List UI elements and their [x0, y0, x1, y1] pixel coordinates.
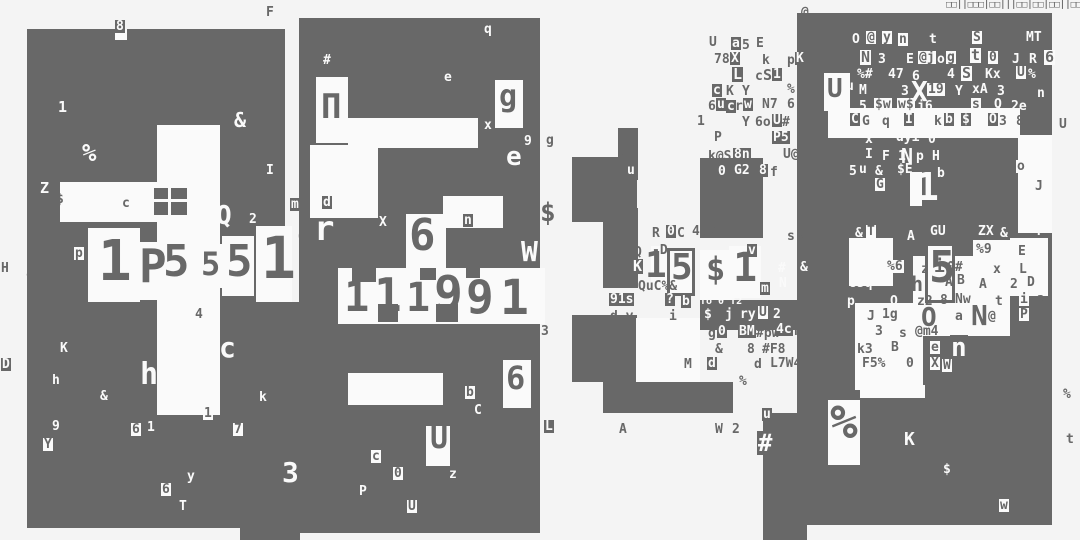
noise-glyph: 1: [733, 248, 757, 288]
noise-glyph: D: [1, 358, 11, 371]
noise-glyph: &: [715, 343, 723, 356]
noise-glyph: MT: [1026, 31, 1042, 44]
noise-glyph: A: [907, 230, 915, 243]
noise-glyph: N: [779, 277, 787, 290]
noise-glyph: u: [627, 164, 635, 177]
noise-glyph: 8n: [733, 148, 751, 161]
noise-glyph: W: [942, 359, 952, 372]
noise-glyph: 5: [798, 232, 806, 245]
noise-glyph: I: [904, 113, 914, 126]
noise-glyph: Q: [994, 98, 1002, 111]
noise-glyph: K: [726, 85, 734, 98]
noise-glyph: 19: [927, 83, 945, 96]
noise-glyph: a: [770, 520, 778, 533]
noise-glyph: o: [1016, 160, 1026, 173]
noise-glyph: O: [852, 33, 860, 46]
noise-glyph: #: [323, 54, 331, 67]
noise-glyph: 5: [163, 240, 190, 284]
noise-glyph: S: [763, 68, 772, 83]
noise-glyph: c: [122, 197, 130, 210]
noise-glyph: 1: [261, 229, 296, 287]
noise-glyph: g: [708, 327, 716, 340]
noise-glyph: #: [778, 262, 786, 275]
noise-glyph: 0: [905, 357, 915, 370]
noise-glyph: i: [1019, 293, 1029, 306]
noise-glyph: j6: [917, 100, 933, 113]
noise-glyph: 9: [466, 274, 494, 320]
noise-glyph: 8: [1016, 115, 1024, 128]
noise-glyph: Nw: [955, 293, 971, 306]
noise-glyph: j: [725, 308, 733, 321]
noise-glyph: 8: [115, 20, 125, 33]
noise-glyph: S: [961, 66, 972, 81]
noise-glyph: 1: [147, 421, 155, 434]
noise-glyph: U@: [783, 148, 799, 161]
noise-glyph: 3: [999, 115, 1007, 128]
noise-glyph: i: [859, 245, 867, 258]
noise-glyph: d: [754, 358, 762, 371]
noise-glyph: o: [937, 53, 945, 66]
noise-glyph: a: [955, 310, 963, 323]
noise-glyph: s: [899, 327, 907, 340]
noise-glyph: J: [1035, 180, 1043, 193]
noise-glyph: 6: [787, 98, 795, 111]
noise-glyph: T: [866, 225, 876, 238]
noise-glyph: Kx: [985, 68, 1001, 81]
noise-glyph: N: [971, 302, 988, 330]
noise-glyph: #: [782, 116, 790, 129]
noise-glyph: 3: [541, 325, 549, 338]
noise-glyph: M: [859, 84, 867, 97]
noise-glyph: 0: [988, 51, 998, 64]
noise-glyph: i: [1037, 310, 1045, 323]
noise-glyph: $E: [897, 163, 913, 176]
noise-glyph: 85q: [849, 277, 872, 290]
noise-glyph: 0: [298, 231, 306, 244]
noise-glyph: □□||□□□|□□|||□□|□□|□□||□□||□|||: [946, 1, 1080, 10]
noise-glyph: y: [187, 470, 195, 483]
gray-block: [285, 302, 300, 540]
noise-glyph: U: [827, 76, 843, 102]
noise-glyph: I: [266, 164, 274, 177]
noise-glyph: h: [911, 274, 923, 294]
noise-glyph: W: [521, 238, 538, 266]
noise-glyph: h: [140, 360, 158, 390]
noise-glyph: E: [1017, 245, 1027, 258]
window-grid-icon-pane: [171, 202, 187, 215]
noise-glyph: E: [756, 37, 764, 50]
noise-glyph: $: [706, 253, 725, 285]
noise-glyph: I: [864, 148, 874, 161]
noise-glyph: i: [934, 258, 945, 276]
noise-glyph: c: [371, 450, 381, 463]
noise-glyph: %: [739, 375, 747, 388]
noise-glyph: $: [56, 193, 64, 206]
noise-glyph: W: [715, 423, 723, 436]
noise-glyph: f: [770, 166, 778, 179]
gray-block: [603, 208, 638, 288]
noise-glyph: u: [846, 80, 854, 93]
noise-glyph: 5: [226, 240, 253, 284]
noise-glyph: t: [995, 295, 1003, 308]
noise-glyph: %6: [886, 260, 904, 273]
noise-glyph: z: [449, 468, 457, 481]
noise-glyph: 6: [131, 423, 141, 436]
noise-glyph: J: [867, 310, 875, 323]
noise-glyph: 6: [409, 214, 436, 258]
noise-glyph: e: [930, 341, 940, 354]
noise-glyph: X: [379, 216, 387, 229]
noise-glyph: 1: [697, 115, 705, 128]
noise-glyph: 1: [500, 274, 529, 322]
noise-glyph: p: [74, 247, 84, 260]
noise-glyph: a: [731, 37, 741, 50]
noise-glyph: C: [677, 227, 685, 240]
white-cutout: [860, 385, 925, 398]
noise-glyph: p: [787, 54, 795, 67]
noise-glyph: b: [944, 113, 954, 126]
noise-glyph: y: [882, 31, 892, 44]
noise-glyph: g: [546, 134, 554, 147]
noise-glyph: &: [800, 261, 808, 274]
noise-glyph: $: [540, 200, 556, 226]
noise-glyph: 78: [714, 53, 730, 66]
noise-glyph: N: [860, 50, 871, 65]
noise-glyph: P: [1019, 308, 1029, 321]
noise-glyph: 6o: [755, 116, 771, 129]
noise-glyph: e: [444, 71, 452, 84]
noise-glyph: B: [890, 341, 900, 354]
noise-glyph: 3: [878, 53, 886, 66]
gray-block: [572, 315, 637, 382]
noise-glyph: &: [234, 110, 246, 130]
noise-glyph: U: [772, 114, 782, 127]
noise-glyph: aH: [875, 245, 891, 258]
noise-glyph: %: [82, 141, 96, 165]
noise-glyph: K: [60, 342, 68, 355]
noise-glyph: H: [1, 262, 9, 275]
noise-glyph: L7W4: [770, 357, 801, 370]
noise-glyph: C: [850, 113, 860, 126]
noise-glyph: 5: [849, 165, 857, 178]
noise-glyph: i: [669, 310, 677, 323]
noise-glyph: t: [970, 48, 981, 63]
noise-glyph: G: [875, 178, 885, 191]
noise-glyph: H: [932, 150, 940, 163]
window-grid-icon-pane: [154, 202, 168, 215]
noise-glyph: k: [934, 115, 942, 128]
noise-glyph: M: [684, 358, 692, 371]
noise-glyph: 0: [928, 133, 936, 146]
noise-glyph: 6: [708, 100, 716, 113]
noise-glyph: 0: [666, 225, 676, 238]
window-grid-icon-pane: [171, 188, 187, 199]
noise-glyph: g: [499, 82, 517, 112]
noise-glyph: 0: [718, 165, 726, 178]
noise-glyph: s: [971, 98, 981, 111]
noise-glyph: F: [882, 150, 890, 163]
noise-glyph: 5: [859, 100, 867, 113]
noise-glyph: k: [259, 391, 267, 404]
noise-glyph: S: [972, 31, 982, 44]
noise-glyph: N7: [762, 98, 778, 111]
noise-glyph: ?: [665, 293, 675, 306]
noise-glyph: 1g: [882, 308, 898, 321]
noise-glyph: 1: [203, 407, 213, 420]
noise-glyph: c: [712, 84, 722, 97]
noise-glyph: 2: [1010, 278, 1018, 291]
noise-glyph: 5: [742, 39, 750, 52]
noise-glyph: &: [100, 390, 108, 403]
noise-glyph: &: [855, 227, 863, 240]
noise-glyph: 9: [524, 135, 532, 148]
noise-glyph: Z: [40, 181, 49, 196]
noise-glyph: 2: [1037, 295, 1045, 308]
noise-glyph: c: [219, 334, 236, 362]
noise-glyph: ry: [740, 308, 756, 321]
noise-glyph: R: [1029, 53, 1037, 66]
noise-glyph: n: [898, 33, 908, 46]
gray-block: [240, 528, 285, 540]
noise-glyph: %: [787, 83, 795, 96]
noise-glyph: 0: [393, 467, 403, 480]
noise-glyph: s: [787, 230, 795, 243]
noise-glyph: b: [465, 386, 475, 399]
noise-glyph: 2: [773, 308, 781, 321]
noise-glyph: p: [916, 150, 924, 163]
noise-glyph: r: [735, 100, 743, 113]
noise-glyph: h: [52, 374, 60, 387]
noise-glyph: 0: [717, 325, 727, 338]
noise-glyph: t: [1066, 433, 1074, 446]
white-cutout: [443, 196, 503, 228]
noise-glyph: K: [904, 431, 915, 449]
noise-glyph: 4uD: [692, 225, 715, 238]
noise-glyph: d y: [610, 310, 633, 323]
noise-glyph: 4: [195, 308, 203, 321]
noise-glyph: Π: [321, 90, 341, 124]
noise-glyph: ZX: [977, 225, 995, 238]
noise-glyph: U: [758, 306, 768, 319]
noise-glyph: Q: [216, 203, 232, 229]
noise-glyph: L: [732, 67, 743, 82]
noise-glyph: 2: [249, 213, 257, 226]
noise-glyph: 7: [233, 423, 243, 436]
noise-glyph: 7: [855, 260, 863, 273]
noise-glyph: u: [716, 98, 726, 111]
noise-glyph: @: [866, 31, 876, 44]
noise-glyph: 6: [506, 362, 525, 394]
noise-glyph: C: [474, 404, 482, 417]
noise-glyph: X: [730, 52, 740, 65]
noise-glyph: dyi: [896, 131, 919, 144]
gray-block: [603, 382, 733, 413]
noise-glyph: m: [760, 282, 770, 295]
noise-glyph: h: [790, 325, 798, 338]
noise-glyph: #: [757, 431, 773, 455]
white-cutout: [348, 118, 478, 148]
white-cutout: [310, 145, 378, 218]
noise-glyph: r: [314, 212, 334, 246]
noise-glyph: F: [266, 6, 274, 19]
white-cutout: [348, 373, 443, 405]
white-cutout: [636, 318, 700, 382]
noise-glyph: n: [950, 335, 968, 361]
noise-glyph: 2e: [1011, 100, 1027, 113]
noise-glyph: B: [956, 274, 966, 287]
noise-glyph: 4: [947, 68, 955, 81]
noise-glyph: O: [988, 113, 998, 126]
noise-glyph: &: [1000, 227, 1008, 240]
noise-glyph: fo 0 f2: [700, 297, 742, 307]
noise-glyph: @: [801, 6, 809, 19]
noise-glyph: A: [979, 278, 987, 291]
noise-glyph: X: [930, 357, 940, 370]
noise-glyph: q: [882, 115, 890, 128]
noise-glyph: 5: [201, 248, 220, 280]
noise-glyph: w$: [897, 98, 915, 111]
noise-glyph: %: [1063, 388, 1071, 401]
noise-glyph: D: [1027, 276, 1035, 289]
noise-glyph: %: [1028, 68, 1036, 81]
noise-glyph: @: [987, 310, 997, 323]
noise-glyph: F5%: [862, 357, 885, 370]
noise-glyph: x: [484, 119, 492, 132]
noise-glyph: L: [1019, 263, 1027, 276]
noise-glyph: 2: [732, 423, 740, 436]
noise-glyph: G2: [733, 164, 751, 177]
noise-glyph: 8: [940, 294, 948, 307]
noise-glyph: d: [322, 196, 332, 209]
noise-glyph: K: [632, 259, 643, 274]
noise-glyph: 1: [58, 100, 67, 115]
noise-glyph: 1: [916, 168, 939, 206]
noise-glyph: q: [484, 23, 492, 36]
noise-glyph: $: [943, 463, 951, 476]
noise-glyph: 6: [1044, 50, 1055, 65]
noise-glyph: k@S: [708, 150, 731, 163]
noise-glyph: x: [865, 133, 873, 146]
noise-glyph: %: [830, 399, 858, 445]
noise-glyph: u: [858, 163, 868, 176]
noise-glyph: 3: [875, 325, 883, 338]
noise-glyph: $: [704, 308, 712, 321]
noise-glyph: %#: [857, 68, 873, 81]
noise-glyph: Y: [955, 85, 963, 98]
noise-glyph: n: [1037, 87, 1045, 100]
noise-glyph: 1: [374, 272, 402, 318]
noise-glyph: 9: [52, 420, 60, 433]
gray-patch: [380, 148, 442, 196]
noise-glyph: k3: [857, 343, 873, 356]
noise-glyph: m: [290, 198, 300, 211]
noise-glyph: 47: [888, 68, 904, 81]
noise-glyph: GU: [929, 225, 947, 238]
noise-glyph: $w: [874, 98, 892, 111]
noise-glyph: x: [992, 263, 1002, 276]
noise-glyph: %9: [975, 243, 993, 256]
white-cutout: [60, 182, 157, 222]
noise-glyph: f: [1035, 225, 1043, 238]
noise-glyph: 91s: [609, 293, 634, 306]
noise-glyph: U: [407, 500, 417, 513]
noise-glyph: 3: [282, 459, 299, 487]
noise-glyph: Y: [742, 116, 750, 129]
noise-glyph: A: [619, 423, 627, 436]
noise-glyph: P: [714, 131, 722, 144]
noise-glyph: 1: [406, 278, 430, 318]
noise-glyph: b: [681, 295, 691, 308]
noise-glyph: d: [707, 357, 717, 370]
noise-canvas: F8@□□||□□□|□□|||□□|□□|□□||□□||□|||U%tH3D…: [0, 0, 1080, 540]
noise-glyph: xA: [972, 83, 988, 96]
noise-glyph: P5: [772, 131, 790, 144]
noise-glyph: e: [506, 144, 522, 170]
noise-glyph: 8: [758, 164, 768, 177]
noise-glyph: U: [1059, 118, 1067, 131]
noise-glyph: U: [709, 36, 717, 49]
noise-glyph: 1: [772, 68, 782, 81]
noise-glyph: #F8: [762, 343, 785, 356]
noise-glyph: 1: [98, 234, 132, 290]
noise-glyph: U: [430, 424, 448, 454]
noise-glyph: $: [961, 113, 971, 126]
window-grid-icon-pane: [154, 188, 168, 199]
noise-glyph: 6: [161, 483, 171, 496]
noise-glyph: L: [544, 420, 554, 433]
noise-glyph: w: [743, 98, 753, 111]
noise-glyph: 1: [344, 276, 369, 318]
noise-glyph: @j: [918, 51, 936, 64]
noise-glyph: A: [945, 276, 953, 289]
noise-glyph: 8: [747, 343, 755, 356]
noise-glyph: U: [1016, 66, 1026, 79]
noise-glyph: 9: [434, 270, 463, 318]
noise-glyph: R: [652, 227, 660, 240]
noise-glyph: K: [795, 52, 805, 65]
noise-glyph: p: [847, 295, 855, 308]
noise-glyph: w: [999, 499, 1009, 512]
noise-glyph: 3: [26, 266, 34, 279]
noise-glyph: E: [906, 53, 914, 66]
noise-glyph: G: [862, 115, 870, 128]
noise-glyph: u: [762, 408, 772, 421]
noise-glyph: Y: [43, 438, 53, 451]
noise-glyph: P: [359, 485, 367, 498]
noise-glyph: g: [946, 51, 956, 64]
noise-glyph: BM: [738, 325, 756, 338]
noise-glyph: T: [179, 500, 187, 513]
noise-glyph: t: [929, 33, 937, 46]
noise-glyph: @m4: [915, 325, 938, 338]
noise-glyph: c: [755, 70, 763, 83]
noise-glyph: n: [463, 214, 473, 227]
